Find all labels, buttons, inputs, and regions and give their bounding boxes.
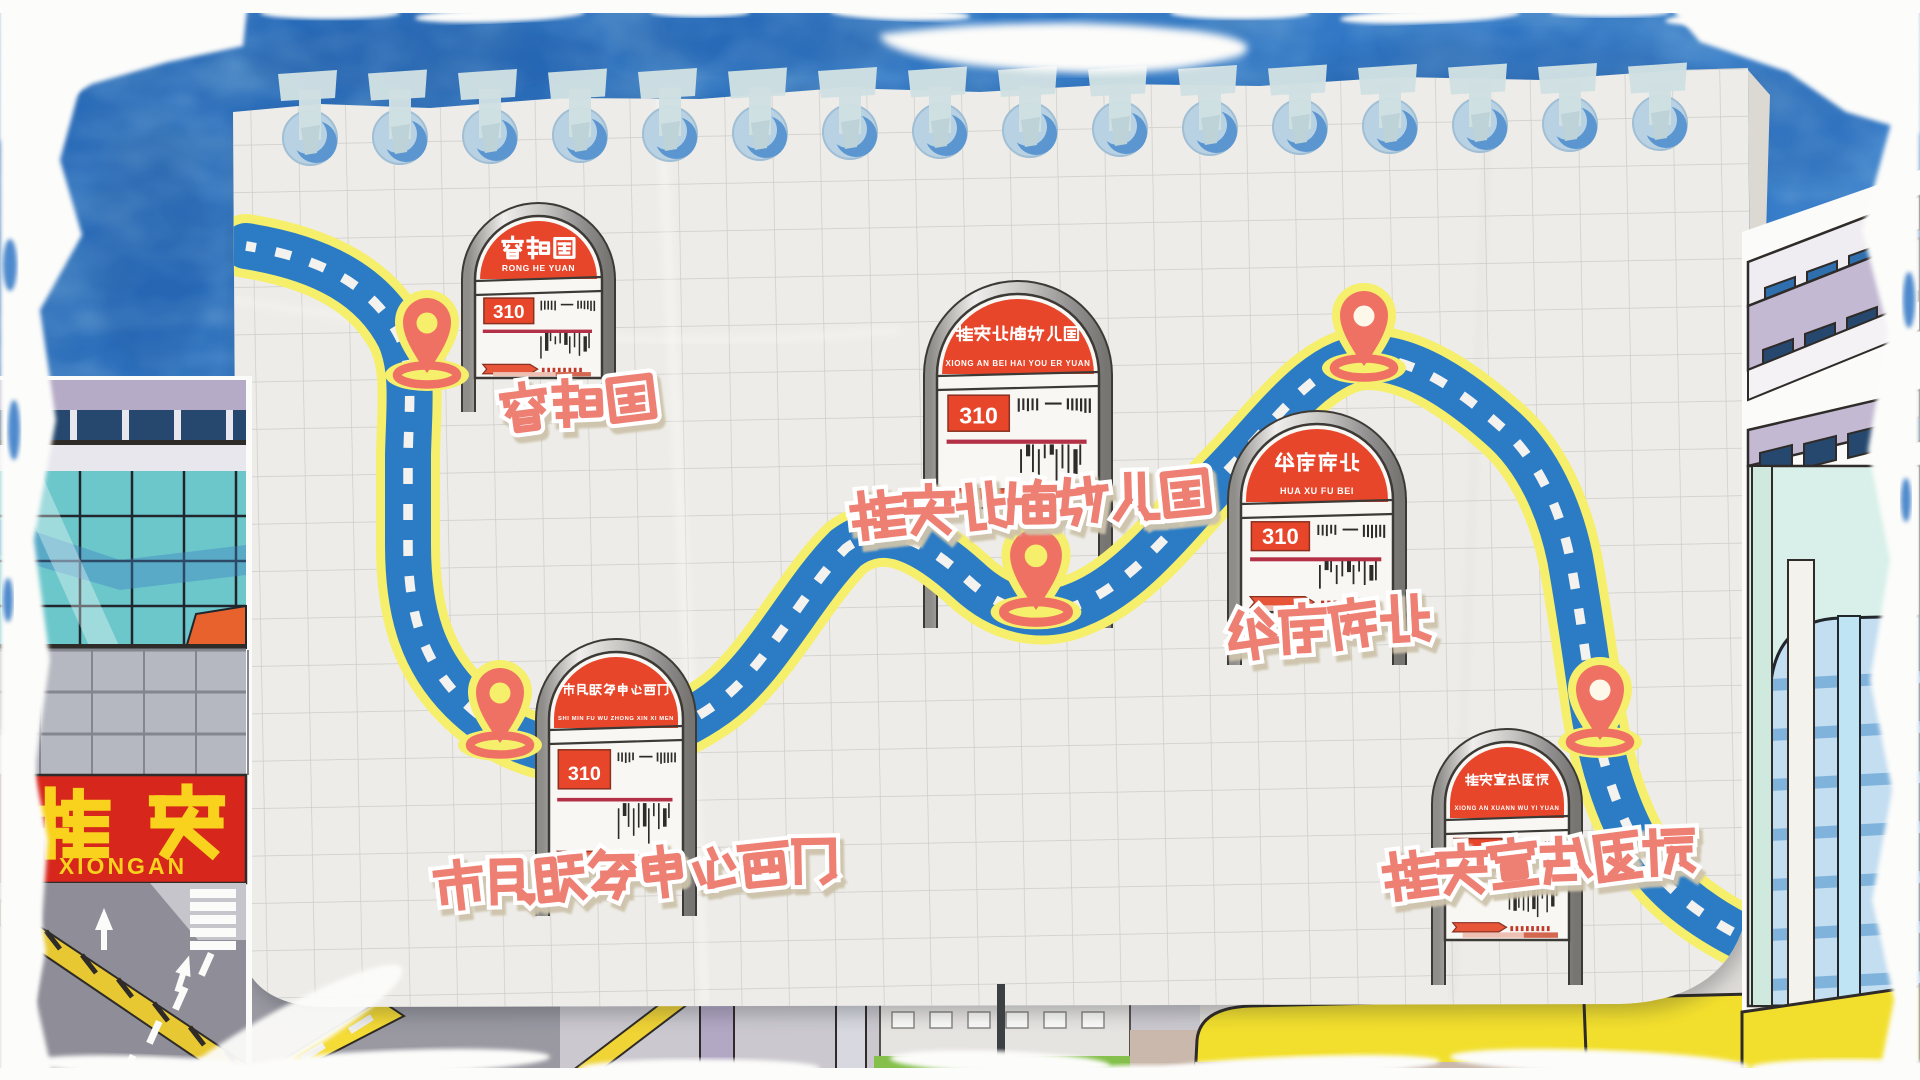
svg-text:310: 310 bbox=[493, 302, 525, 323]
svg-text:310: 310 bbox=[568, 763, 601, 785]
svg-text:RONG HE YUAN: RONG HE YUAN bbox=[502, 263, 575, 273]
svg-text:XIONGAN: XIONGAN bbox=[59, 853, 187, 879]
svg-text:XIONG AN BEI HAI YOU ER YUAN: XIONG AN BEI HAI YOU ER YUAN bbox=[945, 359, 1090, 368]
svg-text:310: 310 bbox=[959, 402, 998, 428]
svg-text:HUA XU FU BEI: HUA XU FU BEI bbox=[1280, 486, 1354, 496]
svg-text:SHI MIN FU WU ZHONG XIN XI MEN: SHI MIN FU WU ZHONG XIN XI MEN bbox=[558, 716, 674, 722]
svg-text:310: 310 bbox=[1262, 524, 1299, 549]
svg-text:XIONG AN XUANN WU YI YUAN: XIONG AN XUANN WU YI YUAN bbox=[1455, 806, 1560, 812]
